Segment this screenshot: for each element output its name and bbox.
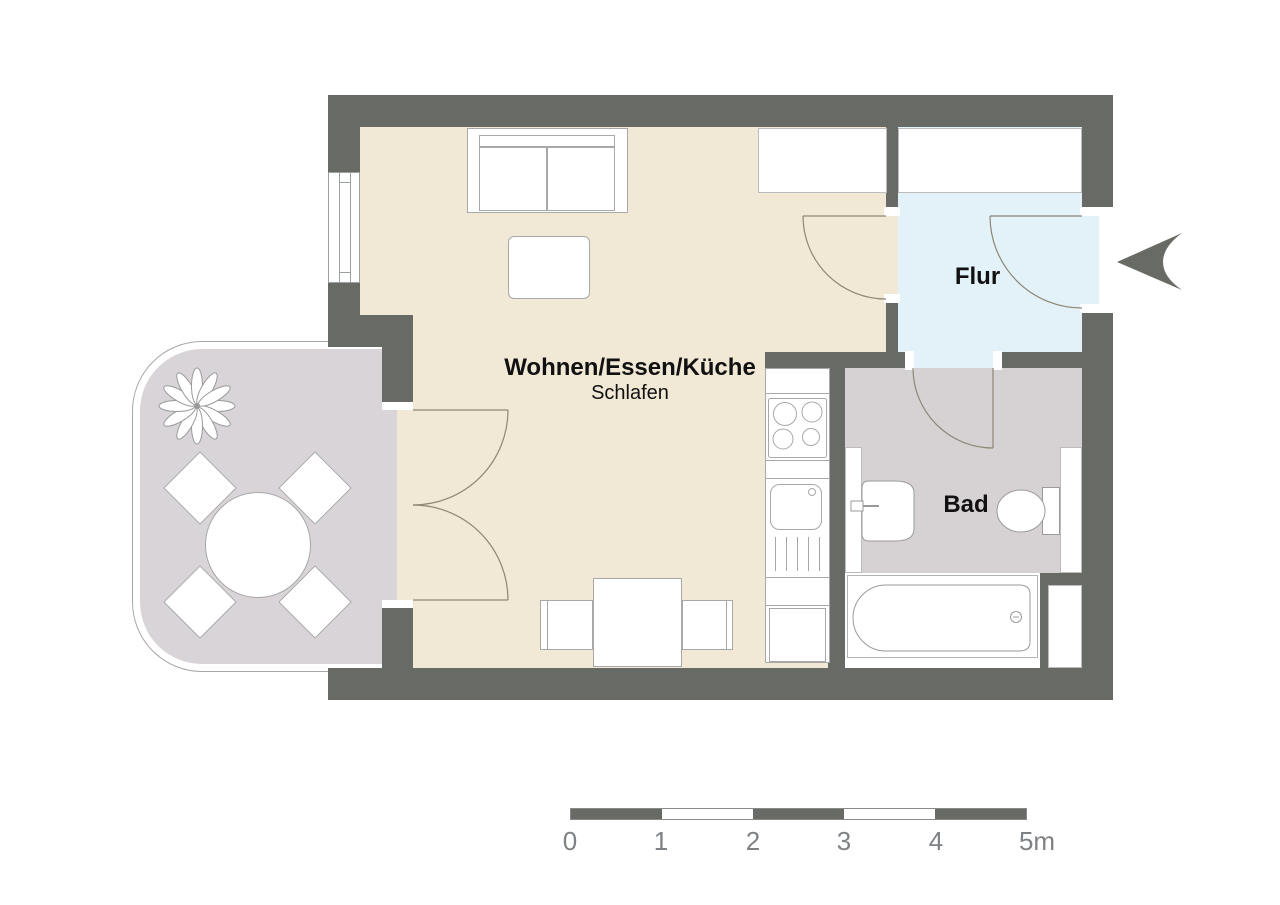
- hall-door-jamb: [884, 294, 900, 303]
- sofa-seat: [479, 147, 547, 211]
- scale-label-5: 5m: [997, 826, 1077, 857]
- partition-living-hall-lower: [886, 303, 898, 353]
- scale-label-4: 4: [896, 826, 976, 857]
- outer-wall-top: [328, 95, 1113, 127]
- outer-wall-right-lower: [1082, 313, 1113, 668]
- tub-nook-wall-h: [1040, 573, 1082, 585]
- balcony-door-jamb: [382, 600, 413, 608]
- outer-wall-left-lower: [328, 283, 360, 347]
- scale-segment: [935, 809, 1026, 819]
- scale-label-2: 2: [713, 826, 793, 857]
- entrance-door-jamb: [1080, 207, 1115, 216]
- kitchen-counter: [765, 368, 830, 663]
- outer-wall-bottom: [328, 668, 1113, 700]
- scale-label-0: 0: [530, 826, 610, 857]
- scale-bar: [570, 808, 1027, 820]
- bath-vanity-right: [1060, 447, 1082, 573]
- wall-bath-top-right: [1002, 352, 1082, 368]
- partition-kitchen-bath: [828, 353, 845, 668]
- sofa-backrest: [479, 135, 615, 147]
- outer-wall-left-upper: [328, 95, 360, 172]
- balcony-table: [205, 492, 311, 598]
- room-label-hall: Flur: [920, 264, 1035, 289]
- dining-chair: [540, 600, 593, 650]
- entrance-threshold: [1082, 216, 1099, 304]
- room-label-living: Wohnen/Essen/Küche: [500, 355, 760, 380]
- entrance-door-jamb: [1080, 304, 1115, 313]
- partition-living-hall-upper: [886, 127, 898, 207]
- living-left-wall-upper: [382, 347, 413, 402]
- bath-door-jamb: [905, 351, 914, 370]
- wall-balcony-return: [360, 315, 413, 347]
- bath-shelf: [1048, 585, 1082, 668]
- floor-plan: Wohnen/Essen/Küche Schlafen Flur Bad 0 1…: [0, 0, 1280, 905]
- scale-label-3: 3: [804, 826, 884, 857]
- room-label-living-sub: Schlafen: [500, 383, 760, 404]
- tub-nook-wall-v: [1040, 585, 1048, 668]
- wardrobe: [898, 128, 1082, 193]
- outer-wall-right-upper: [1082, 127, 1113, 207]
- bath-door-jamb: [993, 351, 1002, 370]
- dining-table: [593, 578, 682, 667]
- bath-tub-area: [845, 573, 1040, 668]
- scale-segment: [662, 809, 753, 819]
- scale-segment: [571, 809, 662, 819]
- bath-vanity-left: [845, 447, 862, 573]
- window: [328, 172, 360, 283]
- coffee-table: [508, 236, 590, 299]
- hall-door-jamb: [884, 207, 900, 216]
- living-left-wall-lower: [382, 608, 413, 668]
- scale-segment: [753, 809, 844, 819]
- entrance-arrow-icon: [1117, 233, 1182, 290]
- sofa-seat: [547, 147, 615, 211]
- room-label-bath: Bad: [910, 492, 1022, 517]
- dining-chair: [682, 600, 733, 650]
- bath-floor: [845, 368, 1082, 573]
- scale-label-1: 1: [621, 826, 701, 857]
- balcony-door-jamb: [382, 402, 413, 410]
- scale-segment: [844, 809, 935, 819]
- bath-door-threshold: [913, 353, 993, 368]
- wardrobe: [758, 128, 887, 193]
